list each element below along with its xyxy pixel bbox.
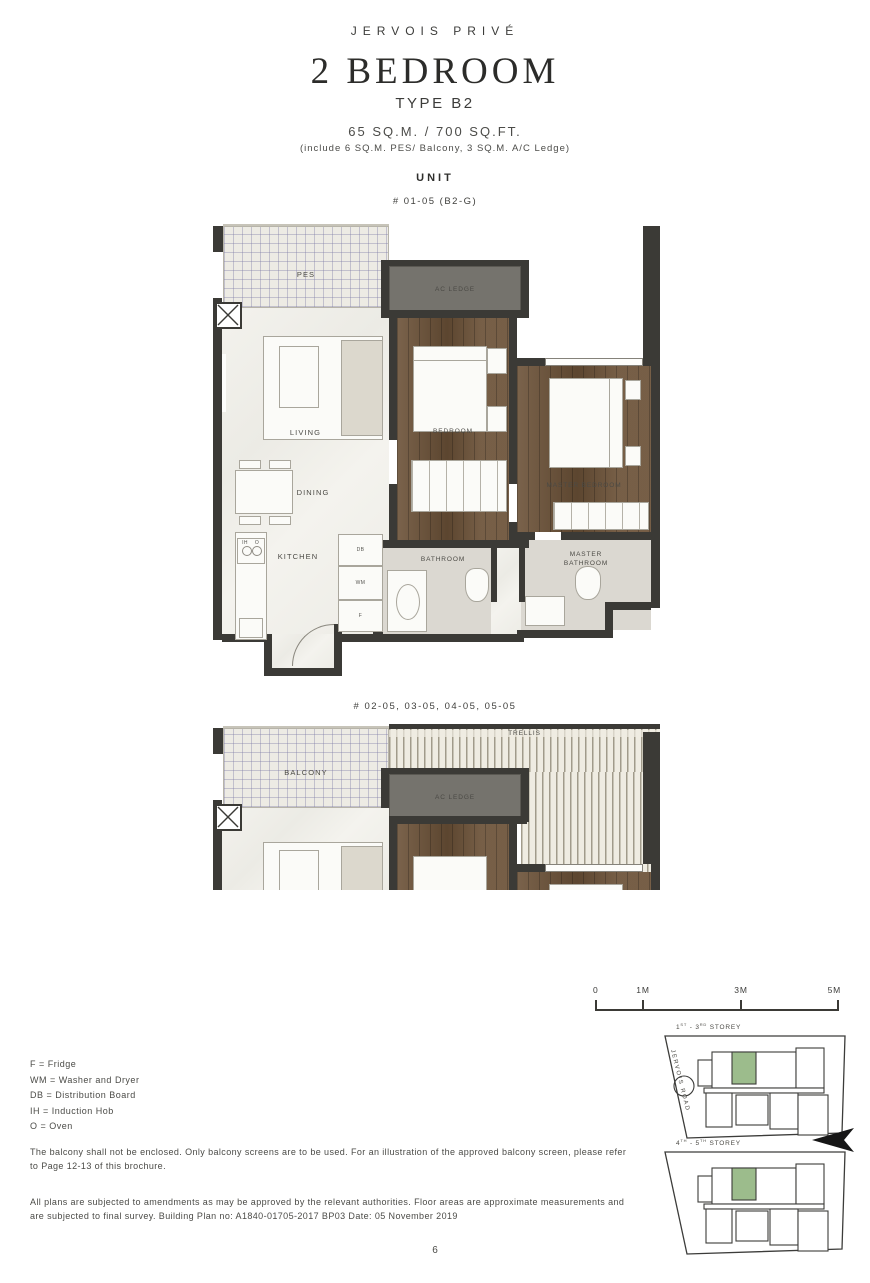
wall xyxy=(213,298,222,640)
dining-chair xyxy=(239,516,261,525)
site-plan-1st-3rd: 1ST - 3RD STOREY JERVOIS ROAD xyxy=(648,1022,850,1140)
highlighted-unit xyxy=(732,1168,756,1200)
room-label-living: LIVING xyxy=(222,428,389,437)
pes-floor xyxy=(223,226,389,308)
room-label-bedroom: BEDROOM xyxy=(397,428,509,435)
wall xyxy=(389,816,527,824)
site-plan-4th-5th: 4TH - 5TH STOREY xyxy=(648,1138,850,1260)
kitchen-sink xyxy=(239,618,263,638)
site-plan-map: JERVOIS ROAD xyxy=(648,1034,850,1140)
scale-tick xyxy=(740,1000,742,1009)
room-label-dining: DINING xyxy=(253,488,373,497)
scale-label: 1M xyxy=(636,985,649,995)
room-label-kitchen: KITCHEN xyxy=(241,552,355,561)
scale-label: 3M xyxy=(734,985,747,995)
master-wardrobe xyxy=(553,502,649,530)
unit-area: 65 SQ.M. / 700 SQ.FT. xyxy=(0,124,870,139)
scale-label: 0 xyxy=(593,985,599,995)
wall xyxy=(521,768,529,822)
bedside-table xyxy=(625,446,641,466)
cross-icon xyxy=(217,304,239,326)
wall xyxy=(264,668,342,676)
room-label-bathroom: BATHROOM xyxy=(399,556,487,563)
storey-label: 4TH - 5TH STOREY xyxy=(676,1138,741,1147)
wall xyxy=(213,728,223,754)
wall xyxy=(517,864,545,872)
master-bedroom-window xyxy=(545,864,643,872)
wall xyxy=(373,540,529,548)
brochure-page: JERVOIS PRIVÉ 2 BEDROOM TYPE B2 65 SQ.M.… xyxy=(0,0,870,1283)
master-bed xyxy=(549,884,623,890)
wall xyxy=(561,532,651,540)
wall xyxy=(517,358,545,366)
unit-area-note: (include 6 SQ.M. PES/ Balcony, 3 SQ.M. A… xyxy=(0,143,870,154)
wall xyxy=(491,548,497,602)
room-label-trellis: TRELLIS xyxy=(389,730,660,737)
wall xyxy=(651,816,660,890)
appliance-label-ih: IH xyxy=(239,540,251,546)
master-toilet xyxy=(575,566,601,600)
page-number: 6 xyxy=(0,1245,870,1256)
dining-chair xyxy=(239,460,261,469)
sofa xyxy=(341,340,383,436)
appliance-legend: F = Fridge WM = Washer and Dryer DB = Di… xyxy=(30,1057,139,1135)
master-bed xyxy=(549,378,623,468)
wall xyxy=(509,824,517,890)
site-plan-map xyxy=(648,1150,850,1256)
scale-tick xyxy=(642,1000,644,1009)
building-footprint xyxy=(698,1164,828,1251)
bathroom-vanity xyxy=(387,570,427,632)
room-label-ac-ledge: AC LEDGE xyxy=(389,286,521,293)
distribution-board-cabinet: DB xyxy=(338,534,383,566)
bed xyxy=(413,856,487,890)
appliance-label-o: O xyxy=(251,540,263,546)
sofa xyxy=(341,846,383,890)
bed xyxy=(413,346,487,432)
master-bed-pillows xyxy=(609,379,622,467)
master-bedroom-window xyxy=(545,358,643,366)
brand-name: JERVOIS PRIVÉ xyxy=(0,24,870,38)
coffee-table xyxy=(279,346,319,408)
legend-item: O = Oven xyxy=(30,1119,139,1135)
room-label-ac-ledge-2: AC LEDGE xyxy=(389,794,521,801)
bed-pillows xyxy=(414,347,486,361)
wall xyxy=(389,310,527,318)
coffee-table xyxy=(279,850,319,890)
wall xyxy=(509,318,517,484)
balcony-note: The balcony shall not be enclosed. Only … xyxy=(30,1146,634,1173)
legend-item: WM = Washer and Dryer xyxy=(30,1073,139,1089)
wall xyxy=(605,602,651,610)
building-footprint xyxy=(698,1048,828,1135)
master-bathroom-vanity xyxy=(525,596,565,626)
wall xyxy=(517,532,535,540)
bathroom-basin xyxy=(396,584,420,620)
bedside-table xyxy=(487,348,507,374)
wall xyxy=(381,260,389,318)
plan1-unit-number: # 01-05 (B2-G) xyxy=(0,196,870,207)
wall xyxy=(517,630,613,638)
bedside-table xyxy=(625,380,641,400)
highlighted-unit xyxy=(732,1052,756,1084)
wall xyxy=(389,484,397,548)
legend-item: IH = Induction Hob xyxy=(30,1104,139,1120)
scale-tick xyxy=(595,1000,597,1009)
scale-bar: 0 1M 3M 5M xyxy=(595,985,839,1015)
room-label-pes: PES xyxy=(223,270,389,279)
wall xyxy=(643,226,660,366)
page-title: 2 BEDROOM xyxy=(0,50,870,93)
wall xyxy=(213,226,223,252)
legend-item: F = Fridge xyxy=(30,1057,139,1073)
room-label-balcony: BALCONY xyxy=(223,768,389,777)
living-window xyxy=(222,354,226,412)
legend-item: DB = Distribution Board xyxy=(30,1088,139,1104)
appliance-label-f: F xyxy=(339,613,382,619)
washer-dryer: WM xyxy=(338,566,383,600)
room-label-master-bathroom: MASTER BATHROOM xyxy=(551,550,621,568)
dining-chair xyxy=(269,516,291,525)
wall xyxy=(389,824,397,890)
scale-tick xyxy=(837,1000,839,1009)
appliance-label-wm: WM xyxy=(339,580,382,586)
fridge: F xyxy=(338,600,383,632)
unit-heading: UNIT xyxy=(0,172,870,184)
plan2-unit-number: # 02-05, 03-05, 04-05, 05-05 xyxy=(0,701,870,712)
wall xyxy=(389,318,397,440)
floor-plan-1: AC LEDGE xyxy=(213,222,660,684)
scale-bar-line xyxy=(595,1009,839,1011)
room-label-master-bedroom: MASTER BEDROOM xyxy=(517,482,651,489)
toilet xyxy=(465,568,489,602)
storey-label: 1ST - 3RD STOREY xyxy=(676,1022,741,1031)
service-shaft xyxy=(215,804,242,831)
scale-label: 5M xyxy=(828,985,841,995)
unit-type: TYPE B2 xyxy=(0,95,870,112)
dining-chair xyxy=(269,460,291,469)
wardrobe xyxy=(411,460,507,512)
floor-plan-2: TRELLIS BALCONY AC LEDGE xyxy=(213,716,660,890)
cross-icon xyxy=(217,806,239,828)
service-shaft xyxy=(215,302,242,329)
wall xyxy=(519,540,525,602)
wall xyxy=(373,634,524,642)
disclaimer-note: All plans are subjected to amendments as… xyxy=(30,1196,630,1223)
